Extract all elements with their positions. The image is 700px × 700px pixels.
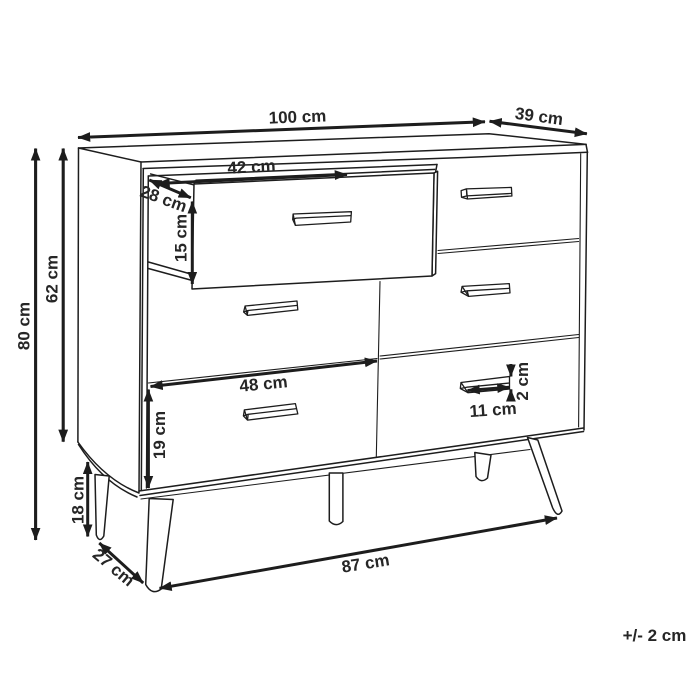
svg-text:19 cm: 19 cm [150,411,169,459]
svg-text:80 cm: 80 cm [15,302,34,350]
svg-text:+/- 2 cm: +/- 2 cm [623,626,687,645]
svg-text:27 cm: 27 cm [89,545,138,591]
svg-text:42 cm: 42 cm [227,156,276,177]
svg-text:11 cm: 11 cm [469,399,517,421]
svg-text:100 cm: 100 cm [268,106,326,127]
svg-text:15 cm: 15 cm [172,214,191,262]
svg-text:18 cm: 18 cm [69,476,88,524]
svg-text:2 cm: 2 cm [513,362,532,401]
svg-text:62 cm: 62 cm [43,255,62,303]
svg-text:48 cm: 48 cm [239,372,289,396]
